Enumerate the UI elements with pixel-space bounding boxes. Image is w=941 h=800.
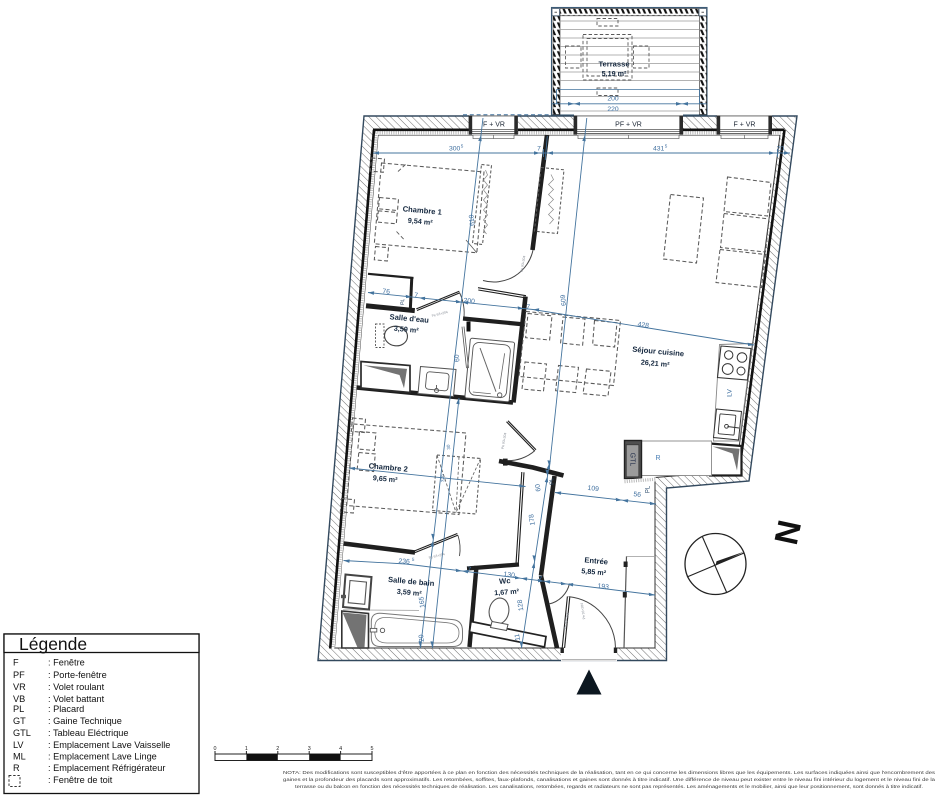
svg-text:20: 20 — [777, 146, 785, 153]
svg-text:: Porte-fenêtre: : Porte-fenêtre — [48, 670, 107, 680]
svg-text:609: 609 — [560, 294, 568, 306]
svg-text:F + VR: F + VR — [734, 122, 756, 129]
svg-text:: Emplacement Réfrigérateur: : Emplacement Réfrigérateur — [48, 763, 165, 773]
svg-text:PL: PL — [646, 485, 652, 493]
svg-text:: Fenêtre: : Fenêtre — [48, 658, 85, 668]
svg-text:60: 60 — [534, 483, 542, 492]
svg-text:gaines et la profondeur des pl: gaines et la profondeur des placards son… — [283, 777, 936, 782]
svg-text:: Volet roulant: : Volet roulant — [48, 682, 105, 692]
svg-text:11: 11 — [514, 633, 522, 641]
svg-text:VB: VB — [13, 694, 25, 704]
svg-text:R: R — [13, 763, 20, 773]
svg-text:220: 220 — [607, 106, 619, 113]
svg-text:NOTA: Des modifications sont s: NOTA: Des modifications sont susceptible… — [283, 770, 936, 775]
svg-text:GT: GT — [13, 716, 26, 726]
svg-text:terrasse ou du balcon en fonct: terrasse ou du balcon en fonction des né… — [295, 784, 923, 789]
svg-text:236: 236 — [398, 558, 410, 566]
svg-text:: Placard: : Placard — [48, 704, 84, 714]
svg-text:300: 300 — [449, 146, 461, 153]
svg-text:Légende: Légende — [19, 634, 87, 654]
svg-text:5: 5 — [665, 144, 668, 149]
svg-text:610: 610 — [468, 214, 476, 226]
svg-text:PL: PL — [400, 298, 407, 305]
svg-text:F + VR: F + VR — [483, 122, 505, 129]
svg-text:326: 326 — [440, 474, 446, 483]
svg-text:R: R — [655, 455, 660, 462]
svg-text:: Emplacement Lave Vaisselle: : Emplacement Lave Vaisselle — [48, 740, 170, 750]
svg-text:: Gaine Technique: : Gaine Technique — [48, 716, 122, 726]
svg-text:56: 56 — [633, 491, 642, 499]
svg-text:PL: PL — [13, 704, 24, 714]
svg-text:: Emplacement Lave Linge: : Emplacement Lave Linge — [48, 752, 157, 762]
svg-text:: Fenêtre de toit: : Fenêtre de toit — [48, 775, 113, 785]
svg-text:5,19 m²: 5,19 m² — [602, 69, 627, 78]
svg-text:76: 76 — [382, 288, 390, 296]
svg-text:5: 5 — [461, 144, 464, 149]
svg-text:: Tableau Eléctrique: : Tableau Eléctrique — [48, 728, 129, 738]
svg-text:Terrasse: Terrasse — [598, 60, 629, 69]
svg-text:Wc: Wc — [499, 576, 511, 586]
svg-text:GTL: GTL — [13, 728, 31, 738]
svg-text:F: F — [13, 658, 19, 668]
svg-text:LV: LV — [727, 389, 734, 397]
svg-text:: Volet battant: : Volet battant — [48, 694, 105, 704]
svg-text:60: 60 — [454, 354, 462, 363]
svg-text:GTL: GTL — [628, 453, 635, 467]
svg-text:LV: LV — [13, 740, 24, 750]
svg-text:109: 109 — [587, 485, 599, 493]
svg-text:ML: ML — [13, 752, 26, 762]
svg-text:20: 20 — [418, 634, 426, 643]
svg-text:PF: PF — [13, 670, 25, 680]
svg-text:193: 193 — [597, 583, 609, 591]
svg-text:VR: VR — [13, 682, 26, 692]
svg-text:431: 431 — [653, 146, 665, 153]
svg-text:7: 7 — [537, 146, 541, 153]
svg-text:200: 200 — [463, 297, 475, 305]
svg-text:30: 30 — [446, 444, 452, 450]
svg-text:1,67 m²: 1,67 m² — [494, 587, 520, 598]
svg-text:200: 200 — [607, 95, 619, 102]
svg-text:PF + VR: PF + VR — [615, 122, 642, 129]
